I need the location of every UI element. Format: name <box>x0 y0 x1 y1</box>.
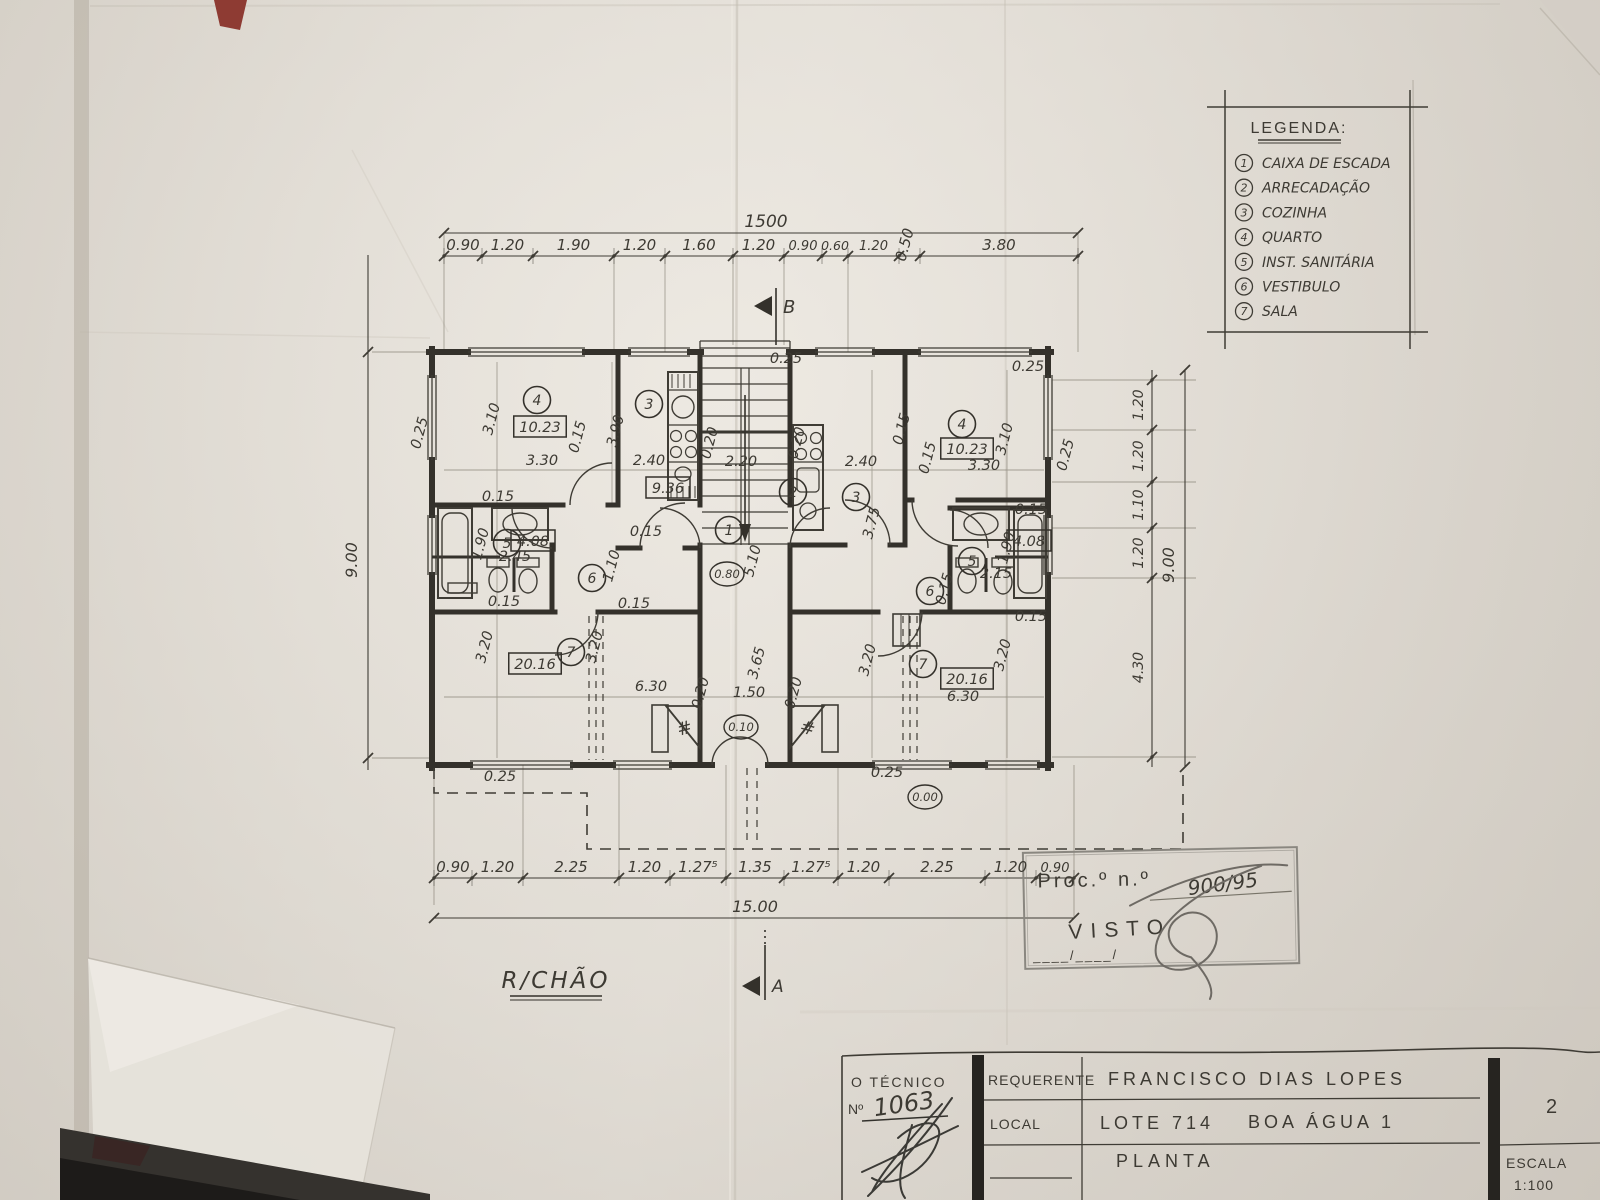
dim-label: 0.90 <box>446 236 479 254</box>
top-total-dim: 1500 <box>744 212 787 232</box>
tick-dot <box>1150 526 1153 529</box>
room-number: 4 <box>533 393 542 409</box>
plan-dim-label: 3.20 <box>473 629 497 664</box>
dimension-totals: 1500 15.00 9.00 9.00 <box>342 212 1190 923</box>
plan-dim-label: 0.15 <box>933 571 957 606</box>
legend-item-label: INST. SANITÁRIA <box>1262 254 1375 271</box>
area-value: 4.08 <box>517 534 549 550</box>
stamp-date-line: ____/____/ <box>1032 947 1118 964</box>
plan-dim-label: 1.50 <box>733 685 765 701</box>
dim-label: 0.90 <box>436 858 469 876</box>
plan-dim-label: 0.15 <box>1015 609 1047 625</box>
dim-label: 0.50 <box>892 226 918 263</box>
right-total-dim: 9.00 <box>1159 547 1178 583</box>
dim-label: 1.20 <box>742 236 775 254</box>
dim-label: 1.20 <box>1131 389 1147 420</box>
floor-plan-drawing: 1500 15.00 9.00 9.00 <box>0 0 1600 1200</box>
plan-dim-label: 0.15 <box>488 594 520 610</box>
bottom-total-dim: 15.00 <box>732 897 778 916</box>
dim-label: 1.20 <box>491 236 524 254</box>
plan-dim-label: 2.40 <box>845 454 877 470</box>
section-marker-b: B <box>754 288 795 345</box>
legend-item-label: ARRECADAÇÃO <box>1261 180 1370 197</box>
local-lote: LOTE 714 <box>1100 1113 1214 1133</box>
plan-dim-label: 0.25 <box>1054 437 1078 472</box>
legend-item-number: 2 <box>1241 182 1248 195</box>
plan-dim-label: 1.10 <box>600 548 624 583</box>
dim-label: 1.20 <box>1131 537 1147 568</box>
plan-dim-label: 0.15 <box>618 596 650 612</box>
legend-item-number: 1 <box>1241 157 1248 170</box>
title-block: O TÉCNICO Nº 1063 REQUERENTE FRANCISCO D… <box>842 1048 1600 1200</box>
plan-dim-label: 0.15 <box>890 411 914 446</box>
room-number: 6 <box>926 584 935 600</box>
room-number: 7 <box>919 657 928 673</box>
left-total-dim: 9.00 <box>342 542 361 578</box>
plan-dim-label: 3.10 <box>993 421 1017 456</box>
plan-dim-label: 0.25 <box>484 769 516 785</box>
plan-dim-label: 5.10 <box>741 543 765 578</box>
room-number: 6 <box>588 571 597 587</box>
plan-dim-label: 3.30 <box>968 458 1000 474</box>
legend-item-label: CAIXA DE ESCADA <box>1262 156 1391 172</box>
dim-label: 4.30 <box>1131 652 1147 683</box>
plan-dim-label: 0.15 <box>566 419 590 454</box>
dim-label: 1.20 <box>1131 440 1147 471</box>
section-a-label: A <box>771 977 784 997</box>
section-b-triangle-icon <box>754 296 772 316</box>
area-value: 20.16 <box>514 657 556 673</box>
plan-dim-label: 0.15 <box>1015 502 1047 518</box>
escala-label: ESCALA <box>1506 1155 1567 1171</box>
plan-dim-label: 3.20 <box>856 642 880 677</box>
plan-dim-label: 0.25 <box>770 351 802 367</box>
area-value: 4.08 <box>1013 534 1045 550</box>
legend-item-label: SALA <box>1262 304 1298 320</box>
plan-dim-label: 0.25 <box>871 765 903 781</box>
hatch-mark-icon: # <box>797 717 817 741</box>
sheet-number: 2 <box>1546 1096 1557 1118</box>
level-value: 0.80 <box>714 567 740 581</box>
tick-dot <box>1150 378 1153 381</box>
plan-dim-label: 0.15 <box>630 524 662 540</box>
level-value: 0.10 <box>728 720 754 734</box>
requerente-label: REQUERENTE <box>988 1072 1095 1088</box>
tecnico-num-label: Nº <box>848 1101 863 1117</box>
legend-title: LEGENDA: <box>1251 120 1348 137</box>
dim-label: 0.60 <box>821 238 849 253</box>
legend: LEGENDA: 1CAIXA DE ESCADA2ARRECADAÇÃO3CO… <box>1207 90 1428 349</box>
section-marker-a: A <box>742 930 784 1000</box>
dim-label: 1.20 <box>994 858 1027 876</box>
legend-item-number: 6 <box>1241 281 1248 294</box>
requerente-value: FRANCISCO DIAS LOPES <box>1108 1069 1406 1089</box>
dim-label: 1.20 <box>859 239 888 254</box>
plan-dim-label: 3.90 <box>604 413 628 448</box>
dim-label: 3.80 <box>982 236 1015 254</box>
legend-item-label: QUARTO <box>1262 230 1322 246</box>
plan-dim-label: 0.25 <box>1012 359 1044 375</box>
dim-label: 1.20 <box>847 858 880 876</box>
section-b-label: B <box>783 297 795 318</box>
plan-dim-label: 3.65 <box>745 645 769 680</box>
stamp-visto: VISTO <box>1068 915 1172 944</box>
section-a-triangle-icon <box>742 976 760 996</box>
legend-item-number: 3 <box>1241 206 1248 219</box>
floor-label: R/CHÃO <box>502 966 611 1000</box>
dim-label: 1.35 <box>738 858 771 876</box>
tick-dot <box>1150 755 1153 758</box>
local-label: LOCAL <box>990 1116 1041 1132</box>
room-number: 2 <box>789 485 798 501</box>
porch-dashed-outline <box>434 768 1183 849</box>
plan-dim-label: 2.15 <box>980 566 1012 582</box>
dim-label: 2.25 <box>920 858 953 876</box>
room-number: 4 <box>958 417 967 433</box>
dim-label: 1.20 <box>623 236 656 254</box>
plan-dim-label: 0.20 <box>689 675 713 710</box>
legend-items: 1CAIXA DE ESCADA2ARRECADAÇÃO3COZINHA4QUA… <box>1236 155 1391 321</box>
dim-label: 0.90 <box>1041 861 1070 876</box>
room-number: 5 <box>968 554 977 570</box>
room-number: 3 <box>645 397 654 413</box>
plan-dim-label: 6.30 <box>947 689 979 705</box>
room-number: 7 <box>567 645 576 661</box>
window-top-left-kitchen <box>628 348 690 356</box>
dim-label: 2.25 <box>554 858 587 876</box>
plan-dim-label: 2.20 <box>725 454 757 470</box>
hatch-mark-icon: # <box>675 717 695 741</box>
room-number: 1 <box>725 523 734 539</box>
tick-dot <box>1150 576 1153 579</box>
dim-label: 1.20 <box>628 858 661 876</box>
window-top-right-bedroom <box>918 348 1032 356</box>
plan-dim-label: 2.40 <box>633 453 665 469</box>
tick-dot <box>1150 480 1153 483</box>
stamp-proc-value: 900/95 <box>1186 867 1259 900</box>
room-number: 3 <box>852 490 861 506</box>
window-top-left-bedroom <box>468 348 585 356</box>
bathroom-fixtures-left <box>438 508 548 598</box>
plan-dim-label: 3.10 <box>480 401 504 436</box>
legend-item-label: VESTIBULO <box>1262 280 1340 296</box>
svg-text:R/CHÃO: R/CHÃO <box>502 966 611 994</box>
window-top-right-kitchen <box>815 348 875 356</box>
legend-item-label: COZINHA <box>1262 205 1327 221</box>
area-value: 10.23 <box>519 420 561 436</box>
dim-label: 1.20 <box>481 858 514 876</box>
escala-value: 1:100 <box>1514 1177 1554 1193</box>
plan-dim-label: 0.15 <box>482 489 514 505</box>
dim-label: 1.10 <box>1131 489 1147 520</box>
legend-item-number: 5 <box>1241 256 1248 269</box>
dim-label: 1.27⁵ <box>791 858 830 876</box>
area-value: 9.36 <box>652 481 684 497</box>
plan-annotations: 0.253.100.153.303.902.400.200.250.202.20… <box>408 351 1078 809</box>
area-value: 20.16 <box>946 672 988 688</box>
construction-lines <box>372 233 1196 918</box>
scanned-floor-plan-photo: 1500 15.00 9.00 9.00 <box>0 0 1600 1200</box>
drawing-title: PLANTA <box>1116 1151 1215 1171</box>
dim-label: 1.90 <box>557 236 590 254</box>
legend-item-number: 7 <box>1241 305 1248 318</box>
room-number: 5 <box>503 536 512 552</box>
plan-dim-label: 3.30 <box>526 453 558 469</box>
plan-dim-label: 3.75 <box>860 505 884 540</box>
dim-label: 1.60 <box>682 236 715 254</box>
level-value: 0.00 <box>912 790 938 804</box>
dim-label: 0.90 <box>789 239 818 254</box>
local-name: BOA ÁGUA 1 <box>1248 1112 1395 1132</box>
legend-item-number: 4 <box>1241 231 1248 244</box>
plan-dim-label: 3.20 <box>991 637 1015 672</box>
dim-label: 1.27⁵ <box>678 858 717 876</box>
area-value: 10.23 <box>946 442 988 458</box>
plan-dim-label: 6.30 <box>635 679 667 695</box>
tick-dot <box>1150 428 1153 431</box>
